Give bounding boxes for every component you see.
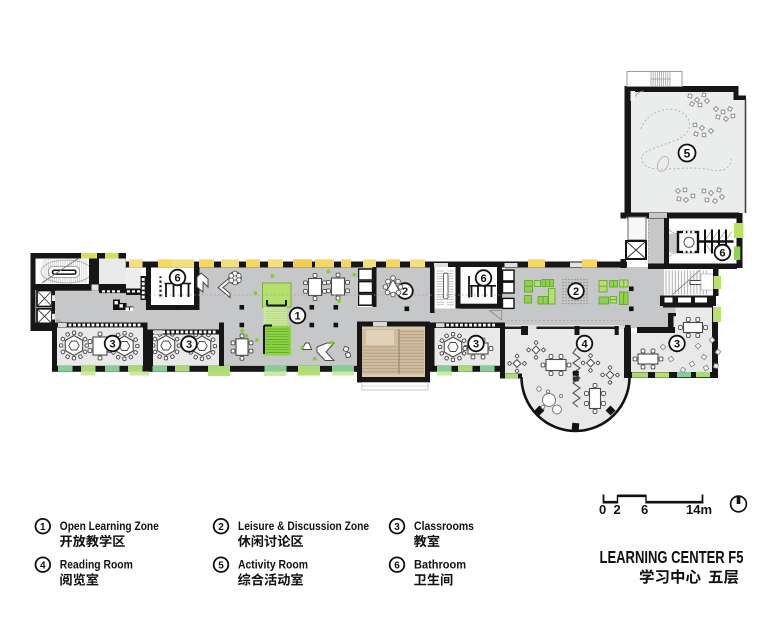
svg-text:2: 2	[218, 522, 224, 533]
svg-text:3: 3	[473, 339, 479, 351]
svg-text:1: 1	[40, 522, 46, 533]
svg-text:0: 0	[599, 502, 606, 517]
svg-text:6: 6	[719, 248, 725, 260]
svg-text:Classrooms: Classrooms	[414, 521, 474, 533]
svg-text:5: 5	[218, 560, 224, 571]
svg-text:2: 2	[573, 286, 579, 298]
svg-text:Open Learning Zone: Open Learning Zone	[60, 521, 159, 533]
svg-text:3: 3	[109, 339, 115, 351]
svg-text:2: 2	[614, 502, 621, 517]
svg-text:Activity Room: Activity Room	[238, 559, 308, 571]
svg-text:1: 1	[294, 311, 300, 323]
svg-text:6: 6	[480, 273, 486, 285]
svg-text:14m: 14m	[686, 502, 712, 517]
svg-text:LEARNING CENTER F5: LEARNING CENTER F5	[600, 547, 744, 567]
svg-text:3: 3	[186, 339, 192, 351]
svg-text:6: 6	[641, 502, 648, 517]
svg-text:Bathroom: Bathroom	[414, 559, 466, 571]
svg-text:6: 6	[394, 560, 400, 571]
svg-text:Reading Room: Reading Room	[60, 559, 133, 571]
svg-text:3: 3	[674, 339, 680, 351]
svg-text:6: 6	[174, 273, 180, 285]
svg-text:5: 5	[684, 146, 691, 160]
svg-text:Leisure & Discussion Zone: Leisure & Discussion Zone	[238, 521, 369, 533]
svg-text:4: 4	[40, 560, 46, 571]
svg-text:3: 3	[394, 522, 400, 533]
svg-text:4: 4	[581, 339, 588, 351]
